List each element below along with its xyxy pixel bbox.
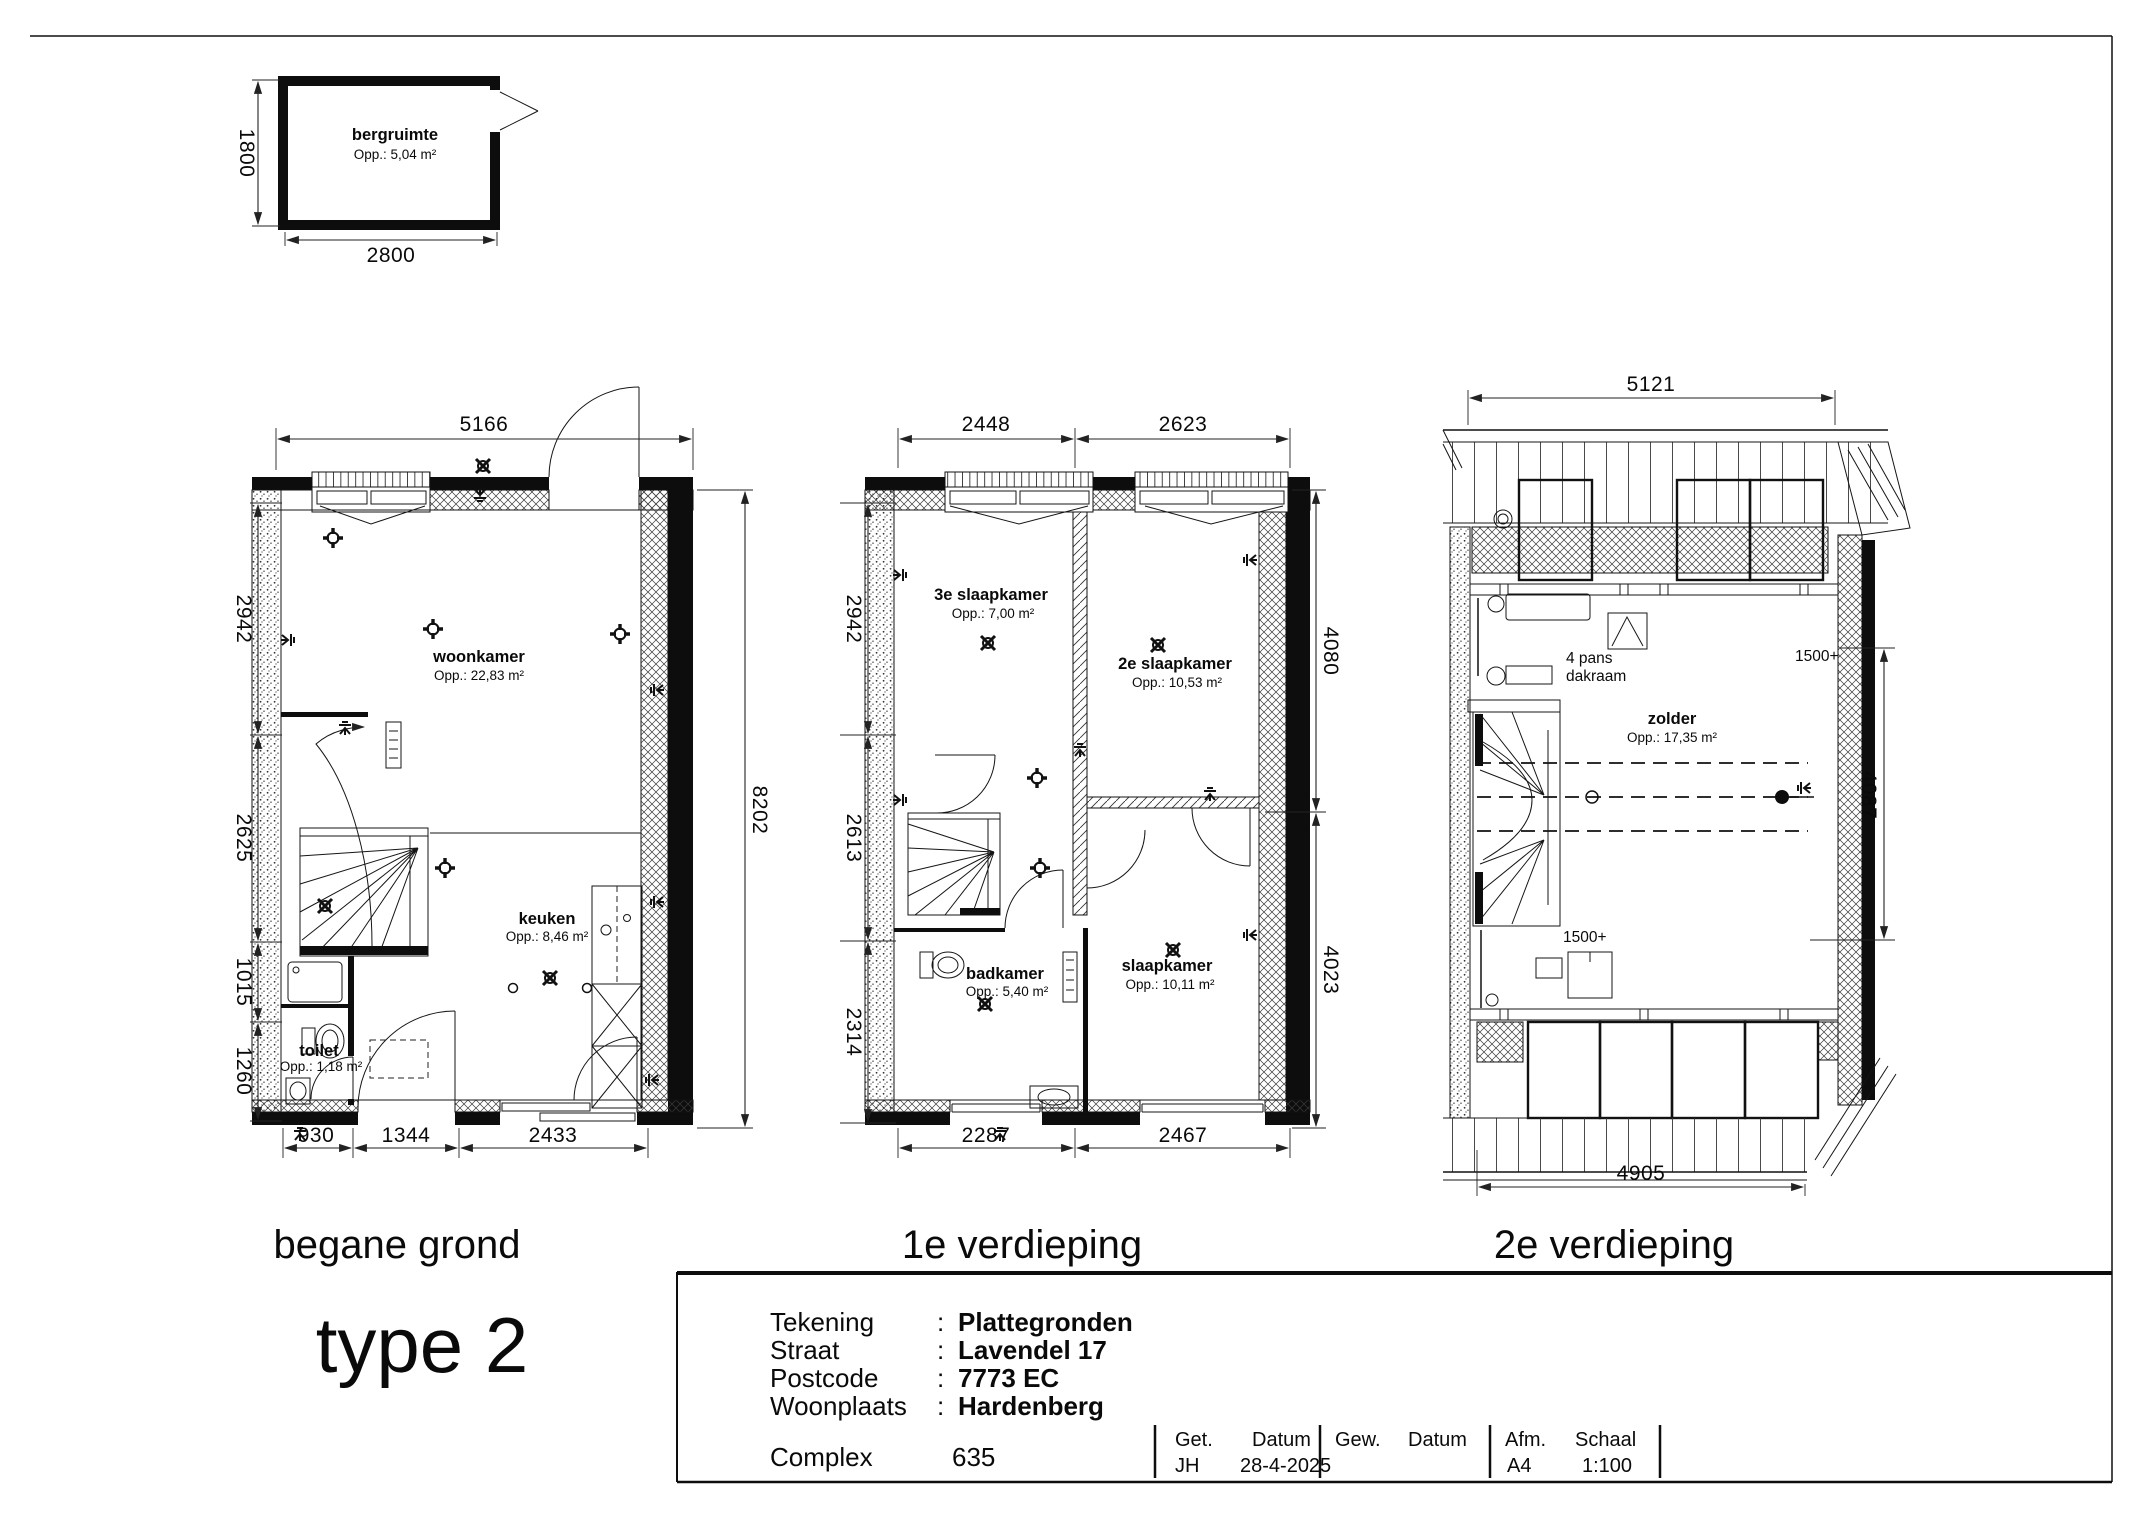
roof-bottom (1443, 1009, 1896, 1180)
room-label-toilet: toilet (299, 1042, 339, 1060)
kitchen-counter (430, 833, 642, 1108)
tb-complex-label: Complex (770, 1442, 873, 1472)
room-label-badkamer: badkamer (966, 965, 1045, 983)
tb-value-straat: Lavendel 17 (958, 1335, 1107, 1365)
window (945, 472, 1093, 524)
room-area-slaapkamer2: Opp.: 10,53 m² (1132, 675, 1223, 690)
roof-window-panel (1528, 1022, 1600, 1118)
knob-symbol (509, 984, 518, 993)
room-area-bergruimte: Opp.: 5,04 m² (354, 147, 437, 162)
meterkast-dashed (370, 1040, 428, 1078)
tb-label-straat: Straat (770, 1335, 840, 1365)
annotation-headroom-bottom: 1500+ (1563, 929, 1607, 946)
dakraam-symbol (1608, 613, 1647, 649)
ground-floor-symbols (281, 459, 664, 1141)
tb-afm-value: A4 (1507, 1455, 1531, 1477)
floorplan-drawing: bergruimte Opp.: 5,04 m² 1800 2800 (0, 0, 2150, 1520)
interior-wall (1087, 797, 1259, 808)
bedroom3-door (935, 755, 995, 813)
tb-schaal-label: Schaal (1575, 1429, 1636, 1451)
room-label-slaapkamer: slaapkamer (1122, 957, 1213, 975)
tb-afm-label: Afm. (1505, 1429, 1546, 1451)
tb-sep: : (937, 1363, 944, 1393)
first-floor-walls (865, 477, 1310, 1125)
room-area-zolder: Opp.: 17,35 m² (1627, 730, 1718, 745)
dim-gf-left-1: 2942 (232, 595, 255, 644)
floorplan-sheet: bergruimte Opp.: 5,04 m² 1800 2800 (0, 0, 2150, 1520)
ground-floor-plan: 5166 8202 2942 2625 1015 1260 9 (232, 387, 771, 1158)
room-label-slaapkamer2: 2e slaapkamer (1118, 655, 1232, 673)
dim-ff-right-2: 4023 (1319, 946, 1342, 995)
dim-gf-bottom-2: 1344 (382, 1124, 431, 1147)
tb-sep: : (937, 1335, 944, 1365)
dim-sf-top: 5121 (1627, 373, 1676, 396)
title-begane-grond: begane grond (274, 1223, 521, 1267)
staircase (300, 828, 428, 956)
tb-get-label: Get. (1175, 1429, 1213, 1451)
room-label-zolder: zolder (1648, 710, 1697, 728)
first-floor-plan: 2448 2623 2942 2613 2314 4080 4023 2287 (840, 413, 1342, 1158)
tb-get-value: JH (1175, 1455, 1199, 1477)
storage-plan: bergruimte Opp.: 5,04 m² 1800 2800 (235, 76, 538, 267)
annotation-dakraam-2: dakraam (1566, 668, 1626, 685)
dim-ff-left-2: 2613 (842, 814, 865, 863)
dim-ff-left-1: 2942 (842, 595, 865, 644)
tb-datum1-value: 28-4-2025 (1240, 1455, 1331, 1477)
tb-gew-label: Gew. (1335, 1429, 1381, 1451)
room-area-woonkamer: Opp.: 22,83 m² (434, 668, 525, 683)
dim-sf-bottom: 4905 (1617, 1162, 1666, 1185)
bottom-window (502, 1103, 635, 1121)
back-door (358, 1011, 455, 1108)
title-1e-verdieping: 1e verdieping (902, 1223, 1142, 1267)
dim-ff-left-3: 2314 (842, 1008, 865, 1057)
tb-value-tekening: Plattegronden (958, 1307, 1133, 1337)
toilet-bowl (932, 952, 964, 978)
room-area-badkamer: Opp.: 5,40 m² (966, 984, 1049, 999)
tb-value-woonplaats: Hardenberg (958, 1391, 1104, 1421)
toilet-room (281, 956, 354, 1105)
roof-top (1443, 430, 1888, 595)
dim-sf-right: 4087 (1857, 771, 1880, 820)
room-label-woonkamer: woonkamer (432, 648, 525, 666)
room-label-bergruimte: bergruimte (352, 126, 438, 144)
dim-gf-bottom-3: 2433 (529, 1124, 578, 1147)
tb-label-postcode: Postcode (770, 1363, 878, 1393)
roof-window-panel (1672, 1022, 1745, 1118)
roof-window-panel (1600, 1022, 1672, 1118)
toilet-cistern (920, 952, 933, 978)
knob-symbol (583, 984, 592, 993)
tb-value-postcode: 7773 EC (958, 1363, 1059, 1393)
front-door (549, 387, 639, 477)
dim-gf-left-4: 1260 (232, 1047, 255, 1096)
tb-label-tekening: Tekening (770, 1307, 874, 1337)
tb-label-woonplaats: Woonplaats (770, 1391, 907, 1421)
tb-schaal-value: 1:100 (1582, 1455, 1632, 1477)
window (312, 472, 430, 524)
storage-door-leaf (500, 92, 538, 130)
room-area-keuken: Opp.: 8,46 m² (506, 929, 589, 944)
radiator (386, 722, 401, 768)
roof-window-panel (1745, 1022, 1818, 1118)
room-area-toilet: Opp.: 1,18 m² (280, 1059, 363, 1074)
dim-ff-bottom-2: 2467 (1159, 1124, 1208, 1147)
interior-wall (1073, 510, 1087, 915)
dim-ff-top-2: 2623 (1159, 413, 1208, 436)
dim-ff-right-1: 4080 (1319, 627, 1342, 676)
type-label: type 2 (316, 1301, 528, 1389)
dim-ff-bottom-1: 2287 (962, 1124, 1011, 1147)
dim-gf-left-2: 2625 (232, 814, 255, 863)
dim-storage-height: 1800 (235, 129, 258, 178)
appliance (288, 962, 342, 1002)
annotation-headroom-right: 1500+ (1795, 648, 1839, 665)
headroom-lines (1477, 763, 1814, 831)
tb-complex-value: 635 (952, 1442, 995, 1472)
dim-gf-top: 5166 (460, 413, 509, 436)
dim-gf-right: 8202 (748, 786, 771, 835)
tb-sep: : (937, 1307, 944, 1337)
tb-sep: : (937, 1391, 944, 1421)
hall-wall (281, 712, 401, 946)
bedroom-door (1192, 808, 1250, 866)
dim-gf-bottom-1: 930 (298, 1124, 335, 1147)
annotation-dakraam-1: 4 pans (1566, 650, 1613, 667)
staircase (908, 813, 1000, 915)
bedroom2-door (1087, 830, 1145, 888)
room-area-slaapkamer3: Opp.: 7,00 m² (952, 606, 1035, 621)
title-block: Tekening : Plattegronden Straat : Lavend… (677, 1272, 2112, 1482)
room-label-slaapkamer3: 3e slaapkamer (934, 586, 1048, 604)
title-2e-verdieping: 2e verdieping (1494, 1223, 1734, 1267)
room-label-keuken: keuken (519, 910, 576, 928)
staircase (1468, 700, 1560, 926)
dim-gf-left-3: 1015 (232, 958, 255, 1007)
tb-datum2-label: Datum (1408, 1429, 1467, 1451)
room-area-slaapkamer: Opp.: 10,11 m² (1125, 977, 1215, 992)
tb-datum1-label: Datum (1252, 1429, 1311, 1451)
dim-storage-width: 2800 (367, 244, 416, 267)
dim-ff-top-1: 2448 (962, 413, 1011, 436)
second-floor-plan: 5121 4087 4905 zolder Opp.: 17,35 m² 4 p… (1443, 373, 1910, 1196)
